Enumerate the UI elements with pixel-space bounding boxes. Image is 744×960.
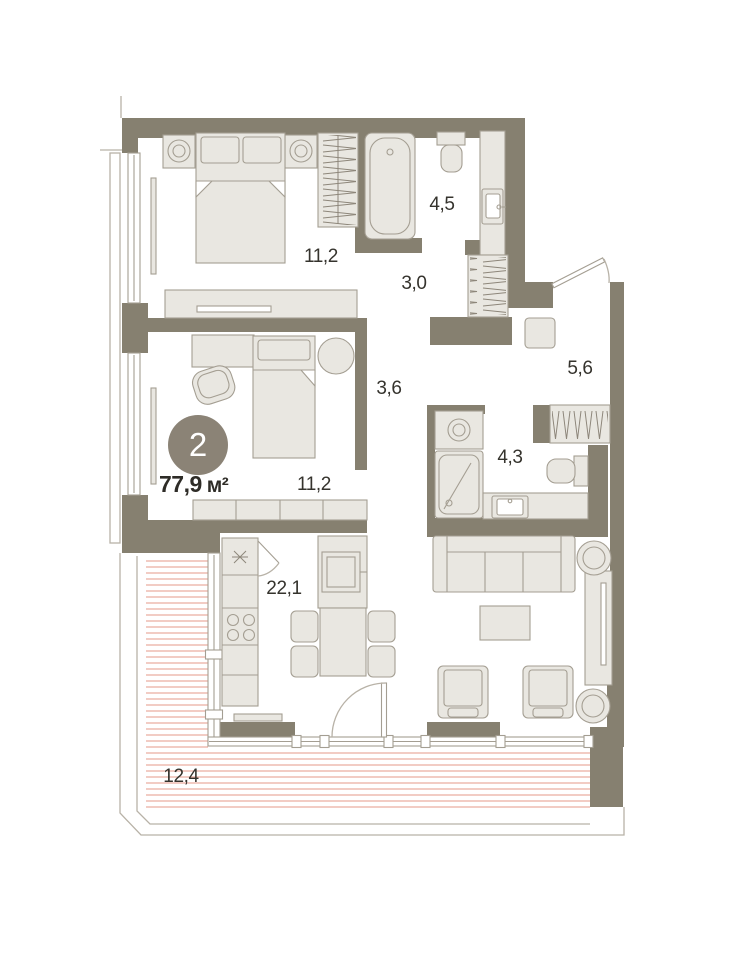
room-count-badge: 2	[168, 415, 228, 475]
bench	[234, 714, 282, 721]
room-area-bathroom: 4,5	[429, 194, 454, 216]
chair	[291, 611, 318, 642]
room-area-kitchen-living: 22,1	[266, 578, 301, 600]
room-area-shower-room: 4,3	[497, 447, 522, 469]
chair	[368, 611, 395, 642]
room-area-entry-hall: 5,6	[567, 358, 592, 380]
dining-table	[320, 608, 366, 676]
sofa	[433, 536, 575, 592]
floor-plan-svg	[0, 0, 744, 960]
rug	[318, 338, 354, 374]
hallway-furniture	[468, 255, 508, 317]
toilet	[574, 456, 588, 486]
total-area-value: 77,9	[159, 471, 202, 497]
total-area-unit: м²	[207, 474, 229, 497]
chair	[291, 646, 318, 677]
coffee-table	[480, 606, 530, 640]
plant	[577, 541, 611, 575]
radiator	[151, 388, 156, 484]
room-area-hallway: 3,0	[401, 273, 426, 295]
washing-machine	[435, 411, 483, 449]
chair	[368, 646, 395, 677]
kitchen-furniture	[222, 536, 395, 721]
room-area-bedroom-1: 11,2	[304, 246, 338, 268]
room-area-corridor: 3,6	[376, 378, 401, 400]
room-area-bedroom-2: 11,2	[297, 474, 331, 496]
radiator	[151, 178, 156, 274]
terrace-door-leaf	[382, 683, 387, 737]
tv-cabinet	[165, 290, 357, 318]
entry-door-leaf	[552, 258, 605, 288]
floor-plan: 2 77,9м² 11,2 4,5 3,0 5,6 3,6 4,3 11,2 2…	[0, 0, 744, 960]
stool	[525, 318, 555, 348]
chair	[189, 363, 238, 408]
plant	[576, 689, 610, 723]
bedroom-1-furniture	[163, 133, 358, 318]
total-area-label: 77,9м²	[159, 471, 228, 498]
living-room-furniture	[433, 536, 612, 723]
tv-unit	[585, 571, 612, 685]
bathroom-furniture	[365, 131, 506, 255]
room-area-terrace: 12,4	[163, 766, 198, 788]
desk	[192, 335, 254, 367]
toilet	[437, 132, 465, 145]
